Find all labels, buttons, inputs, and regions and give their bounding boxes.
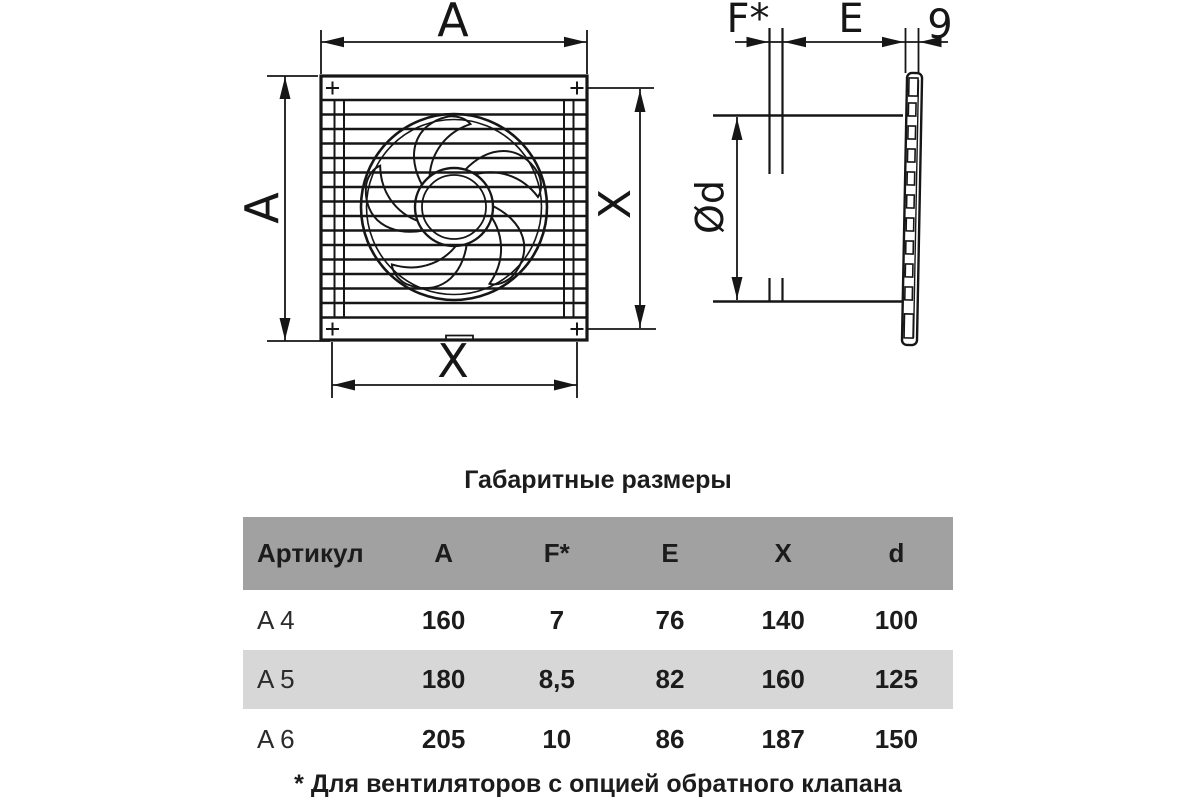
dim-label-height-left: A	[239, 192, 285, 223]
cell-x: 140	[727, 605, 840, 636]
size-table: Артикул A F* E X d A 4 160 7 76 140 100 …	[243, 517, 953, 770]
column-header-e: E	[613, 538, 726, 569]
cell-article: A 5	[243, 664, 387, 695]
dim-label-duct-diameter: Ød	[691, 180, 729, 234]
dim-label-flange: F*	[726, 0, 769, 39]
table-row: A 4 160 7 76 140 100	[243, 590, 953, 650]
cell-d: 100	[840, 605, 953, 636]
dim-label-height-right: X	[594, 189, 638, 219]
dim-duct-diameter	[732, 117, 743, 300]
technical-drawing	[0, 0, 1200, 460]
cell-e: 76	[613, 605, 726, 636]
cell-a: 180	[387, 664, 500, 695]
dim-label-depth: E	[838, 0, 863, 39]
column-header-d: d	[840, 538, 953, 569]
column-header-a: A	[387, 538, 500, 569]
cell-x: 187	[727, 724, 840, 755]
cell-article: A 6	[243, 724, 387, 755]
table-row: A 6 205 10 86 187 150	[243, 709, 953, 770]
cell-a: 205	[387, 724, 500, 755]
duct-spigot	[770, 28, 783, 302]
cell-e: 86	[613, 724, 726, 755]
table-header-row: Артикул A F* E X d	[243, 517, 953, 590]
dim-label-width-bottom: X	[437, 338, 469, 384]
grille-plate-side	[902, 73, 922, 345]
cell-x: 160	[727, 664, 840, 695]
column-header-f: F*	[500, 538, 613, 569]
cell-f: 7	[500, 605, 613, 636]
cell-d: 150	[840, 724, 953, 755]
table-title: Габаритные размеры	[243, 466, 953, 495]
table-row: A 5 180 8,5 82 160 125	[243, 650, 953, 709]
side-view	[713, 28, 948, 345]
cell-f: 8,5	[500, 664, 613, 695]
column-header-x: X	[727, 538, 840, 569]
cell-d: 125	[840, 664, 953, 695]
cell-e: 82	[613, 664, 726, 695]
fan-hub	[415, 168, 493, 246]
housing-edges	[713, 116, 903, 302]
dim-label-grille-thickness: 9	[927, 5, 952, 45]
cell-a: 160	[387, 605, 500, 636]
column-header-article: Артикул	[243, 538, 387, 569]
plate-extension-lines	[906, 28, 919, 73]
dim-label-width-top: A	[437, 0, 468, 43]
table-footnote: * Для вентиляторов с опцией обратного кл…	[243, 770, 953, 799]
cell-article: A 4	[243, 605, 387, 636]
page: A A X X F* E 9 Ød Габаритные размеры Арт…	[0, 0, 1200, 800]
cell-f: 10	[500, 724, 613, 755]
